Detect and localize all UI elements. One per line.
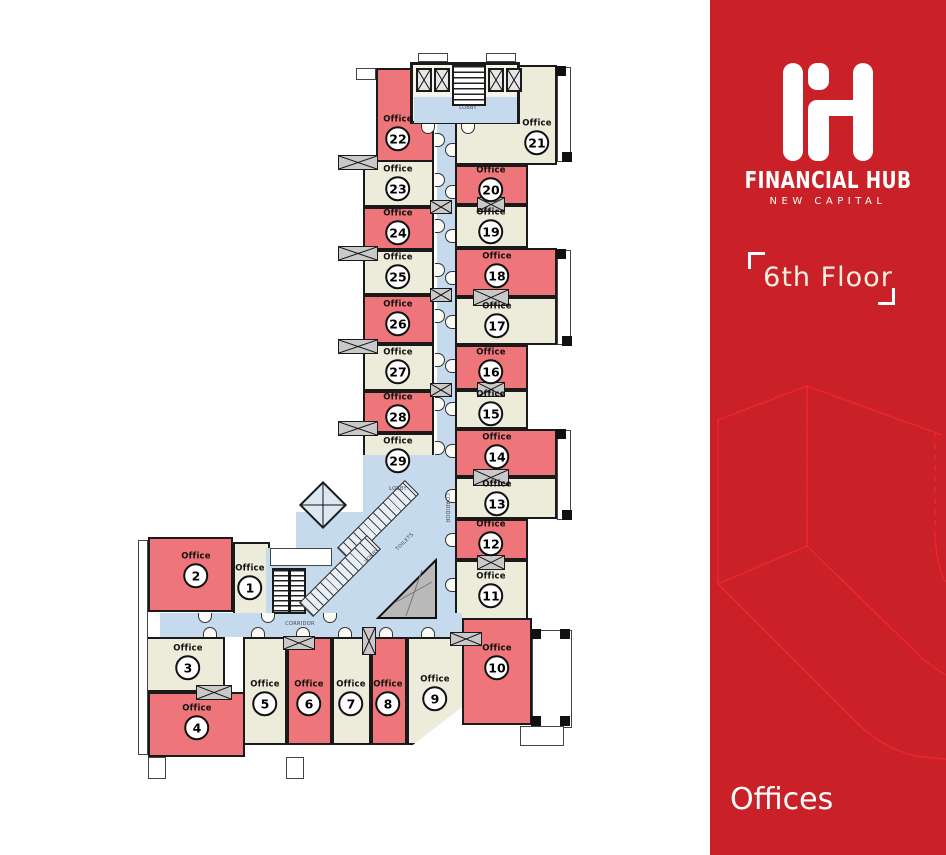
- office-number: 26: [385, 311, 410, 336]
- office-label-8: Office8: [373, 680, 403, 716]
- office-word: Office: [482, 252, 512, 261]
- office-label-3: Office3: [173, 644, 203, 680]
- office-number: 14: [484, 444, 509, 469]
- office-word: Office: [182, 704, 212, 713]
- office-word: Office: [476, 348, 506, 357]
- door-arc: [445, 578, 455, 592]
- door-arc: [445, 143, 455, 157]
- lobby-label: LOBBY: [389, 486, 407, 492]
- shaft-symbol: [283, 636, 315, 650]
- office-number: 17: [484, 313, 509, 338]
- office-word: Office: [336, 680, 366, 689]
- elevator-icon: [488, 68, 504, 92]
- office-number: 22: [385, 126, 410, 151]
- office-label-29: Office29: [383, 437, 413, 473]
- office-word: Office: [482, 433, 512, 442]
- shaft-symbol: [338, 339, 378, 354]
- office-number: 21: [524, 130, 549, 155]
- office-number: 7: [338, 691, 363, 716]
- office-number: 29: [385, 448, 410, 473]
- balcony-post: [562, 152, 572, 162]
- balcony: [557, 430, 571, 520]
- void-triangle: [376, 558, 440, 622]
- door-arc: [379, 627, 393, 637]
- office-word: Office: [173, 644, 203, 653]
- office-word: Office: [476, 208, 506, 217]
- office-number: 10: [484, 655, 509, 680]
- office-word: Office: [250, 680, 280, 689]
- financial-hub-logo: [782, 62, 874, 162]
- office-word: Office: [383, 253, 413, 262]
- office-word: Office: [482, 644, 512, 653]
- balcony: [520, 726, 564, 746]
- office-word: Office: [383, 348, 413, 357]
- shaft-symbol: [450, 632, 482, 646]
- office-word: Office: [181, 552, 211, 561]
- door-arc: [445, 315, 455, 329]
- office-word: Office: [476, 166, 506, 175]
- office-word: Office: [522, 119, 552, 128]
- office-word: Office: [383, 165, 413, 174]
- balcony-post: [556, 429, 566, 439]
- storage-room: [270, 548, 332, 566]
- office-number: 20: [478, 177, 503, 202]
- balcony: [418, 53, 448, 62]
- balcony-post: [560, 629, 570, 639]
- office-label-20: Office20: [476, 166, 506, 202]
- office-label-15: Office15: [476, 390, 506, 426]
- balcony: [486, 53, 516, 62]
- office-number: 15: [478, 401, 503, 426]
- door-arc: [251, 627, 265, 637]
- office-number: 1: [237, 575, 262, 600]
- office-word: Office: [482, 302, 512, 311]
- office-label-6: Office6: [294, 680, 324, 716]
- office-label-11: Office11: [476, 572, 506, 608]
- office-label-23: Office23: [383, 165, 413, 201]
- corridor-label: CORRIDOR: [285, 621, 315, 627]
- category-label: Offices: [730, 782, 833, 817]
- balcony-post: [560, 716, 570, 726]
- info-panel: FINANCIAL HUB NEW CAPITAL 6th Floor Offi…: [710, 0, 946, 855]
- office-label-10: Office10: [482, 644, 512, 680]
- door-arc: [445, 359, 455, 373]
- office-number: 19: [478, 219, 503, 244]
- balcony-post: [562, 510, 572, 520]
- shaft-symbol: [338, 246, 378, 261]
- balcony-post: [556, 66, 566, 76]
- shaft-symbol: [477, 555, 505, 570]
- office-number: 11: [478, 583, 503, 608]
- office-label-5: Office5: [250, 680, 280, 716]
- office-word: Office: [383, 393, 413, 402]
- office-number: 5: [252, 691, 277, 716]
- office-label-22: Office22: [383, 115, 413, 151]
- stairs-icon: [272, 568, 306, 614]
- office-number: 18: [484, 263, 509, 288]
- office-label-13: Office13: [482, 480, 512, 516]
- office-number: 28: [385, 404, 410, 429]
- shaft-symbol: [362, 627, 376, 655]
- office-word: Office: [383, 300, 413, 309]
- office-number: 8: [375, 691, 400, 716]
- office-label-17: Office17: [482, 302, 512, 338]
- door-arc: [445, 271, 455, 285]
- office-label-16: Office16: [476, 348, 506, 384]
- office-label-25: Office25: [383, 253, 413, 289]
- office-label-21: Office21: [522, 119, 552, 155]
- floor-label: 6th Floor: [710, 262, 946, 293]
- office-number: 13: [484, 491, 509, 516]
- office-word: Office: [420, 675, 450, 684]
- shaft-symbol: [338, 421, 378, 436]
- office-label-26: Office26: [383, 300, 413, 336]
- door-arc: [421, 627, 435, 637]
- office-label-1: Office1: [235, 564, 265, 600]
- office-label-24: Office24: [383, 209, 413, 245]
- balcony-post: [562, 336, 572, 346]
- office-number: 9: [422, 686, 447, 711]
- office-number: 3: [175, 655, 200, 680]
- shaft-symbol: [430, 200, 452, 214]
- balcony-post: [531, 629, 541, 639]
- office-number: 4: [184, 715, 209, 740]
- elevator-icon: [434, 68, 450, 92]
- office-label-18: Office18: [482, 252, 512, 288]
- shaft-symbol: [430, 383, 452, 397]
- office-label-7: Office7: [336, 680, 366, 716]
- door-arc: [445, 185, 455, 199]
- office-word: Office: [476, 572, 506, 581]
- office-word: Office: [476, 390, 506, 399]
- office-number: 16: [478, 359, 503, 384]
- shaft-symbol: [338, 155, 378, 170]
- brand-subtitle: NEW CAPITAL: [710, 196, 946, 207]
- door-arc: [445, 402, 455, 416]
- door-arc: [338, 627, 352, 637]
- office-number: 27: [385, 359, 410, 384]
- office-word: Office: [482, 480, 512, 489]
- balcony: [356, 68, 376, 80]
- office-word: Office: [373, 680, 403, 689]
- office-number: 2: [183, 563, 208, 588]
- door-arc: [203, 627, 217, 637]
- door-arc: [445, 229, 455, 243]
- balcony-post: [556, 249, 566, 259]
- lobby-label: LOBBY: [459, 105, 477, 111]
- balcony-post: [531, 716, 541, 726]
- balcony: [557, 250, 571, 345]
- brochure-page: LOBBY LOBBY LOBBY TOILETS CORRIDOR CORRI…: [0, 0, 946, 855]
- balcony: [148, 757, 166, 779]
- floor-label-row: 6th Floor: [710, 246, 946, 316]
- office-label-14: Office14: [482, 433, 512, 469]
- office-label-2: Office2: [181, 552, 211, 588]
- office-word: Office: [383, 437, 413, 446]
- brand-name: FINANCIAL HUB: [734, 168, 923, 194]
- office-number: 24: [385, 220, 410, 245]
- elevator-icon: [416, 68, 432, 92]
- balcony: [532, 630, 572, 728]
- office-label-9: Office9: [420, 675, 450, 711]
- shaft-symbol: [430, 288, 452, 302]
- balcony: [557, 67, 571, 162]
- office-label-4: Office4: [182, 704, 212, 740]
- office-number: 23: [385, 176, 410, 201]
- office-word: Office: [476, 520, 506, 529]
- door-arc: [445, 533, 455, 547]
- office-label-28: Office28: [383, 393, 413, 429]
- bracket-bottomright-icon: [878, 288, 895, 305]
- balcony: [286, 757, 304, 779]
- balcony: [138, 540, 148, 755]
- office-number: 12: [478, 531, 503, 556]
- office-label-19: Office19: [476, 208, 506, 244]
- office-word: Office: [383, 115, 413, 124]
- office-word: Office: [383, 209, 413, 218]
- stairs-icon: [452, 64, 486, 106]
- office-number: 6: [296, 691, 321, 716]
- corridor-label: CORRIDOR: [444, 493, 450, 523]
- shaft-symbol: [196, 685, 232, 700]
- office-label-12: Office12: [476, 520, 506, 556]
- door-arc: [445, 444, 455, 458]
- office-number: 25: [385, 264, 410, 289]
- office-label-27: Office27: [383, 348, 413, 384]
- elevator-icon: [506, 68, 522, 92]
- office-word: Office: [294, 680, 324, 689]
- office-word: Office: [235, 564, 265, 573]
